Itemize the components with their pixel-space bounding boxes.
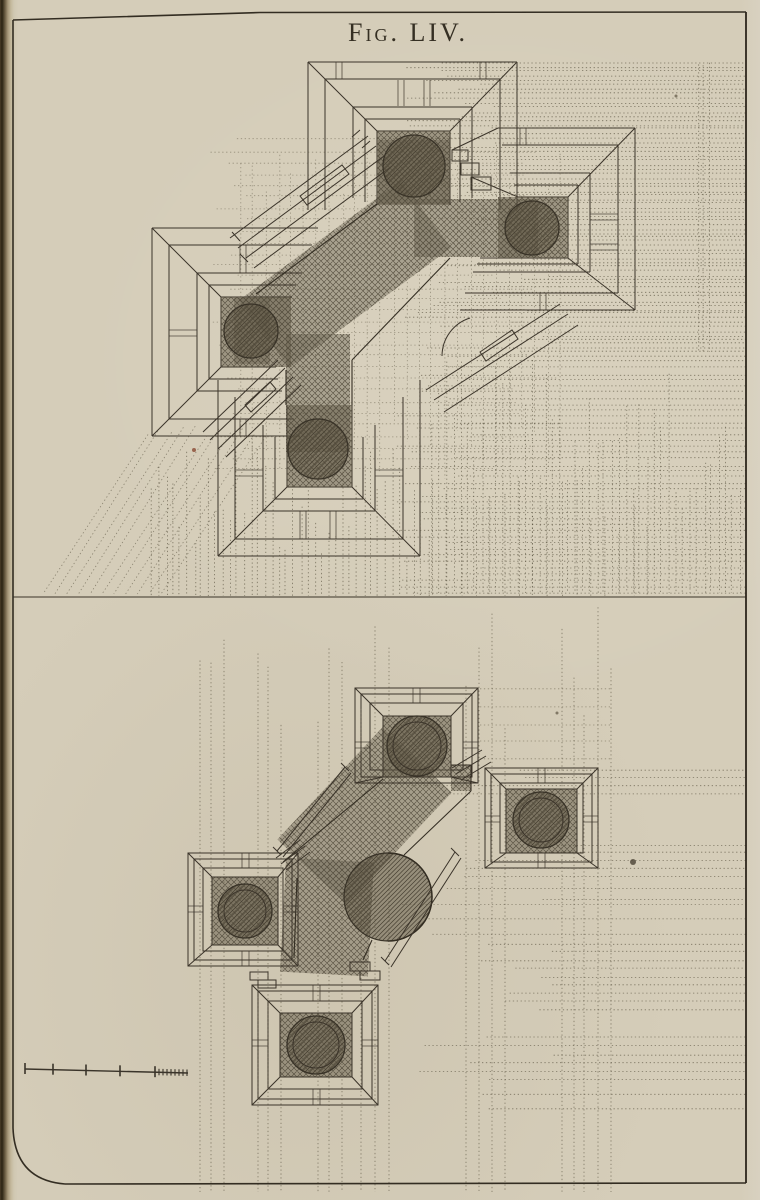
- tower-square-right: [485, 768, 598, 868]
- figure-caption: Fig. LIV.: [288, 18, 528, 48]
- column-circle: [287, 1016, 345, 1074]
- hall-dome-circle: [344, 853, 432, 941]
- column-circle-left: [224, 304, 278, 358]
- scale-bar: [25, 1063, 188, 1077]
- stepped-corridor-top-right: [452, 128, 518, 197]
- tower-square-bottom: [252, 985, 378, 1105]
- book-page: Fig. LIV.: [0, 0, 760, 1200]
- tower-square-left: [188, 853, 298, 966]
- stepped-corridor-bottom-right: [426, 304, 578, 412]
- engraving-plate: [0, 0, 760, 1200]
- column-circle: [387, 716, 447, 776]
- figure-caption-numeral: LIV.: [409, 18, 467, 47]
- figure-bottom-plan: [188, 688, 598, 1105]
- figure-caption-prefix: Fig.: [348, 18, 400, 47]
- column-circle: [513, 792, 569, 848]
- column-circle: [218, 884, 272, 938]
- column-circle-top: [383, 135, 445, 197]
- column-circle-bottom: [288, 419, 348, 479]
